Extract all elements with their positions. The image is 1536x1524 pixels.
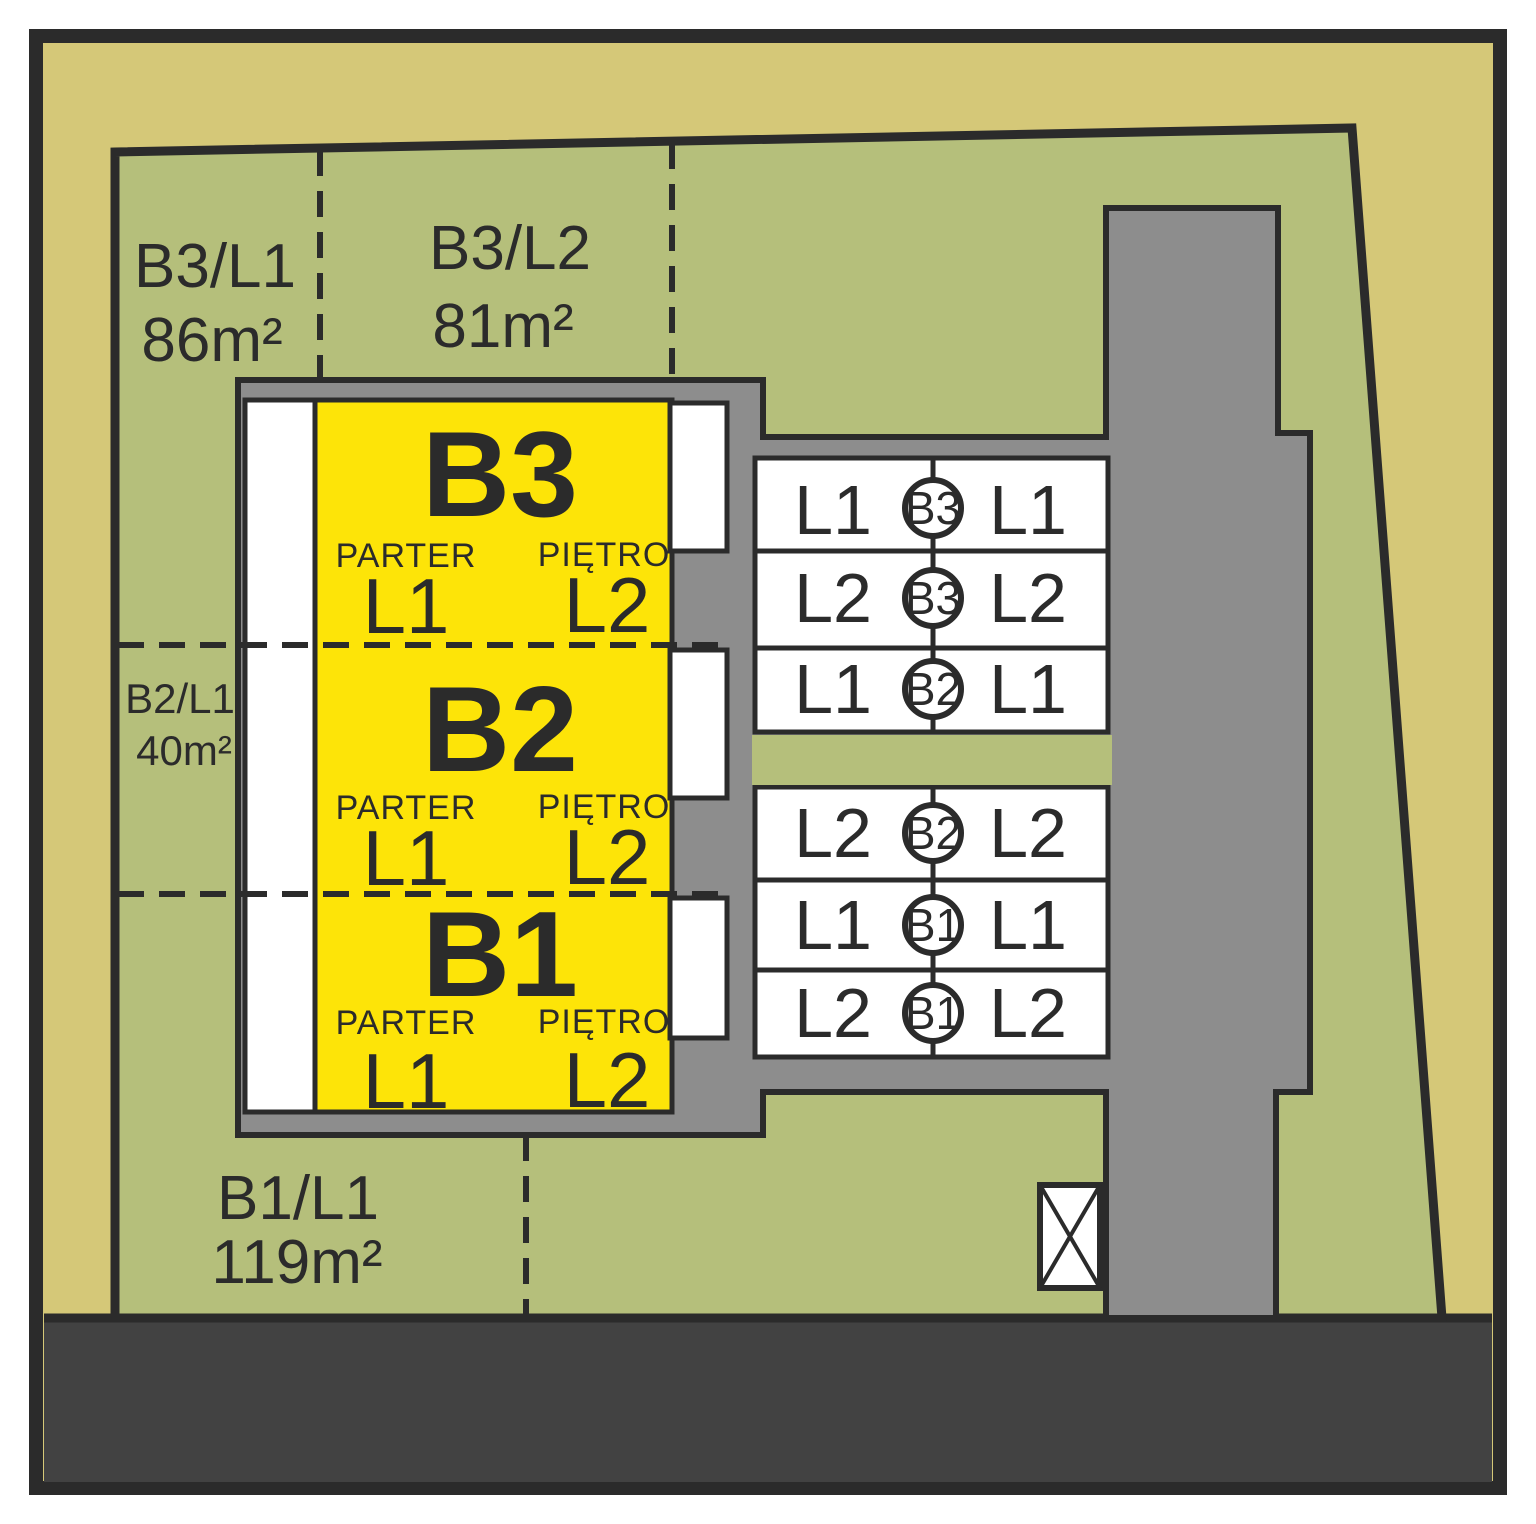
stall-row3-left: L1 — [794, 654, 872, 724]
stall-row1-right: L1 — [989, 475, 1067, 545]
stall-row5-building-badge: B1 — [902, 894, 964, 956]
segment-b1-title: B1 — [422, 893, 578, 1015]
stall-row2-right: L2 — [989, 563, 1067, 633]
area-b3l1-name: B3/L1 — [134, 236, 296, 298]
segment-b2-title: B2 — [422, 668, 578, 790]
stall-row1-building-badge: B3 — [902, 477, 964, 539]
segment-b2-upper-unit: L2 — [564, 818, 651, 896]
segment-b3-title: B3 — [422, 413, 578, 535]
stall-row3-right: L1 — [989, 654, 1067, 724]
stall-row5-right: L1 — [989, 890, 1067, 960]
segment-b1-upper-unit: L2 — [564, 1041, 651, 1119]
segment-b1-ground-unit: L1 — [363, 1042, 450, 1120]
stall-row2-building-badge: B3 — [902, 567, 964, 629]
area-b1l1-size: 119m² — [211, 1232, 382, 1294]
stall-row4-building-badge: B2 — [902, 802, 964, 864]
area-b3l1-size: 86m² — [141, 310, 282, 372]
segment-b3-ground-unit: L1 — [363, 567, 450, 645]
stall-row6-right: L2 — [989, 978, 1067, 1048]
area-b2l1-name: B2/L1 — [125, 678, 235, 720]
area-b1l1-name: B1/L1 — [217, 1168, 379, 1230]
stall-row5-left: L1 — [794, 890, 872, 960]
stall-row4-left: L2 — [794, 798, 872, 868]
segment-b1-upper-label: PIĘTRO — [538, 1005, 671, 1039]
stall-row4-right: L2 — [989, 798, 1067, 868]
site-plan: B3/L1 86m² B3/L2 81m² B2/L1 40m² B1/L1 1… — [0, 0, 1536, 1524]
stall-row6-building-badge: B1 — [902, 982, 964, 1044]
stall-row2-left: L2 — [794, 563, 872, 633]
stall-row3-building-badge: B2 — [902, 658, 964, 720]
area-b3l2-name: B3/L2 — [429, 218, 591, 280]
stall-row1-left: L1 — [794, 475, 872, 545]
stall-row6-left: L2 — [794, 978, 872, 1048]
area-b2l1-size: 40m² — [136, 730, 232, 772]
segment-b3-upper-unit: L2 — [564, 566, 651, 644]
area-b3l2-size: 81m² — [432, 296, 573, 358]
labels-layer: B3/L1 86m² B3/L2 81m² B2/L1 40m² B1/L1 1… — [0, 0, 1536, 1524]
segment-b1-ground-label: PARTER — [336, 1006, 477, 1040]
